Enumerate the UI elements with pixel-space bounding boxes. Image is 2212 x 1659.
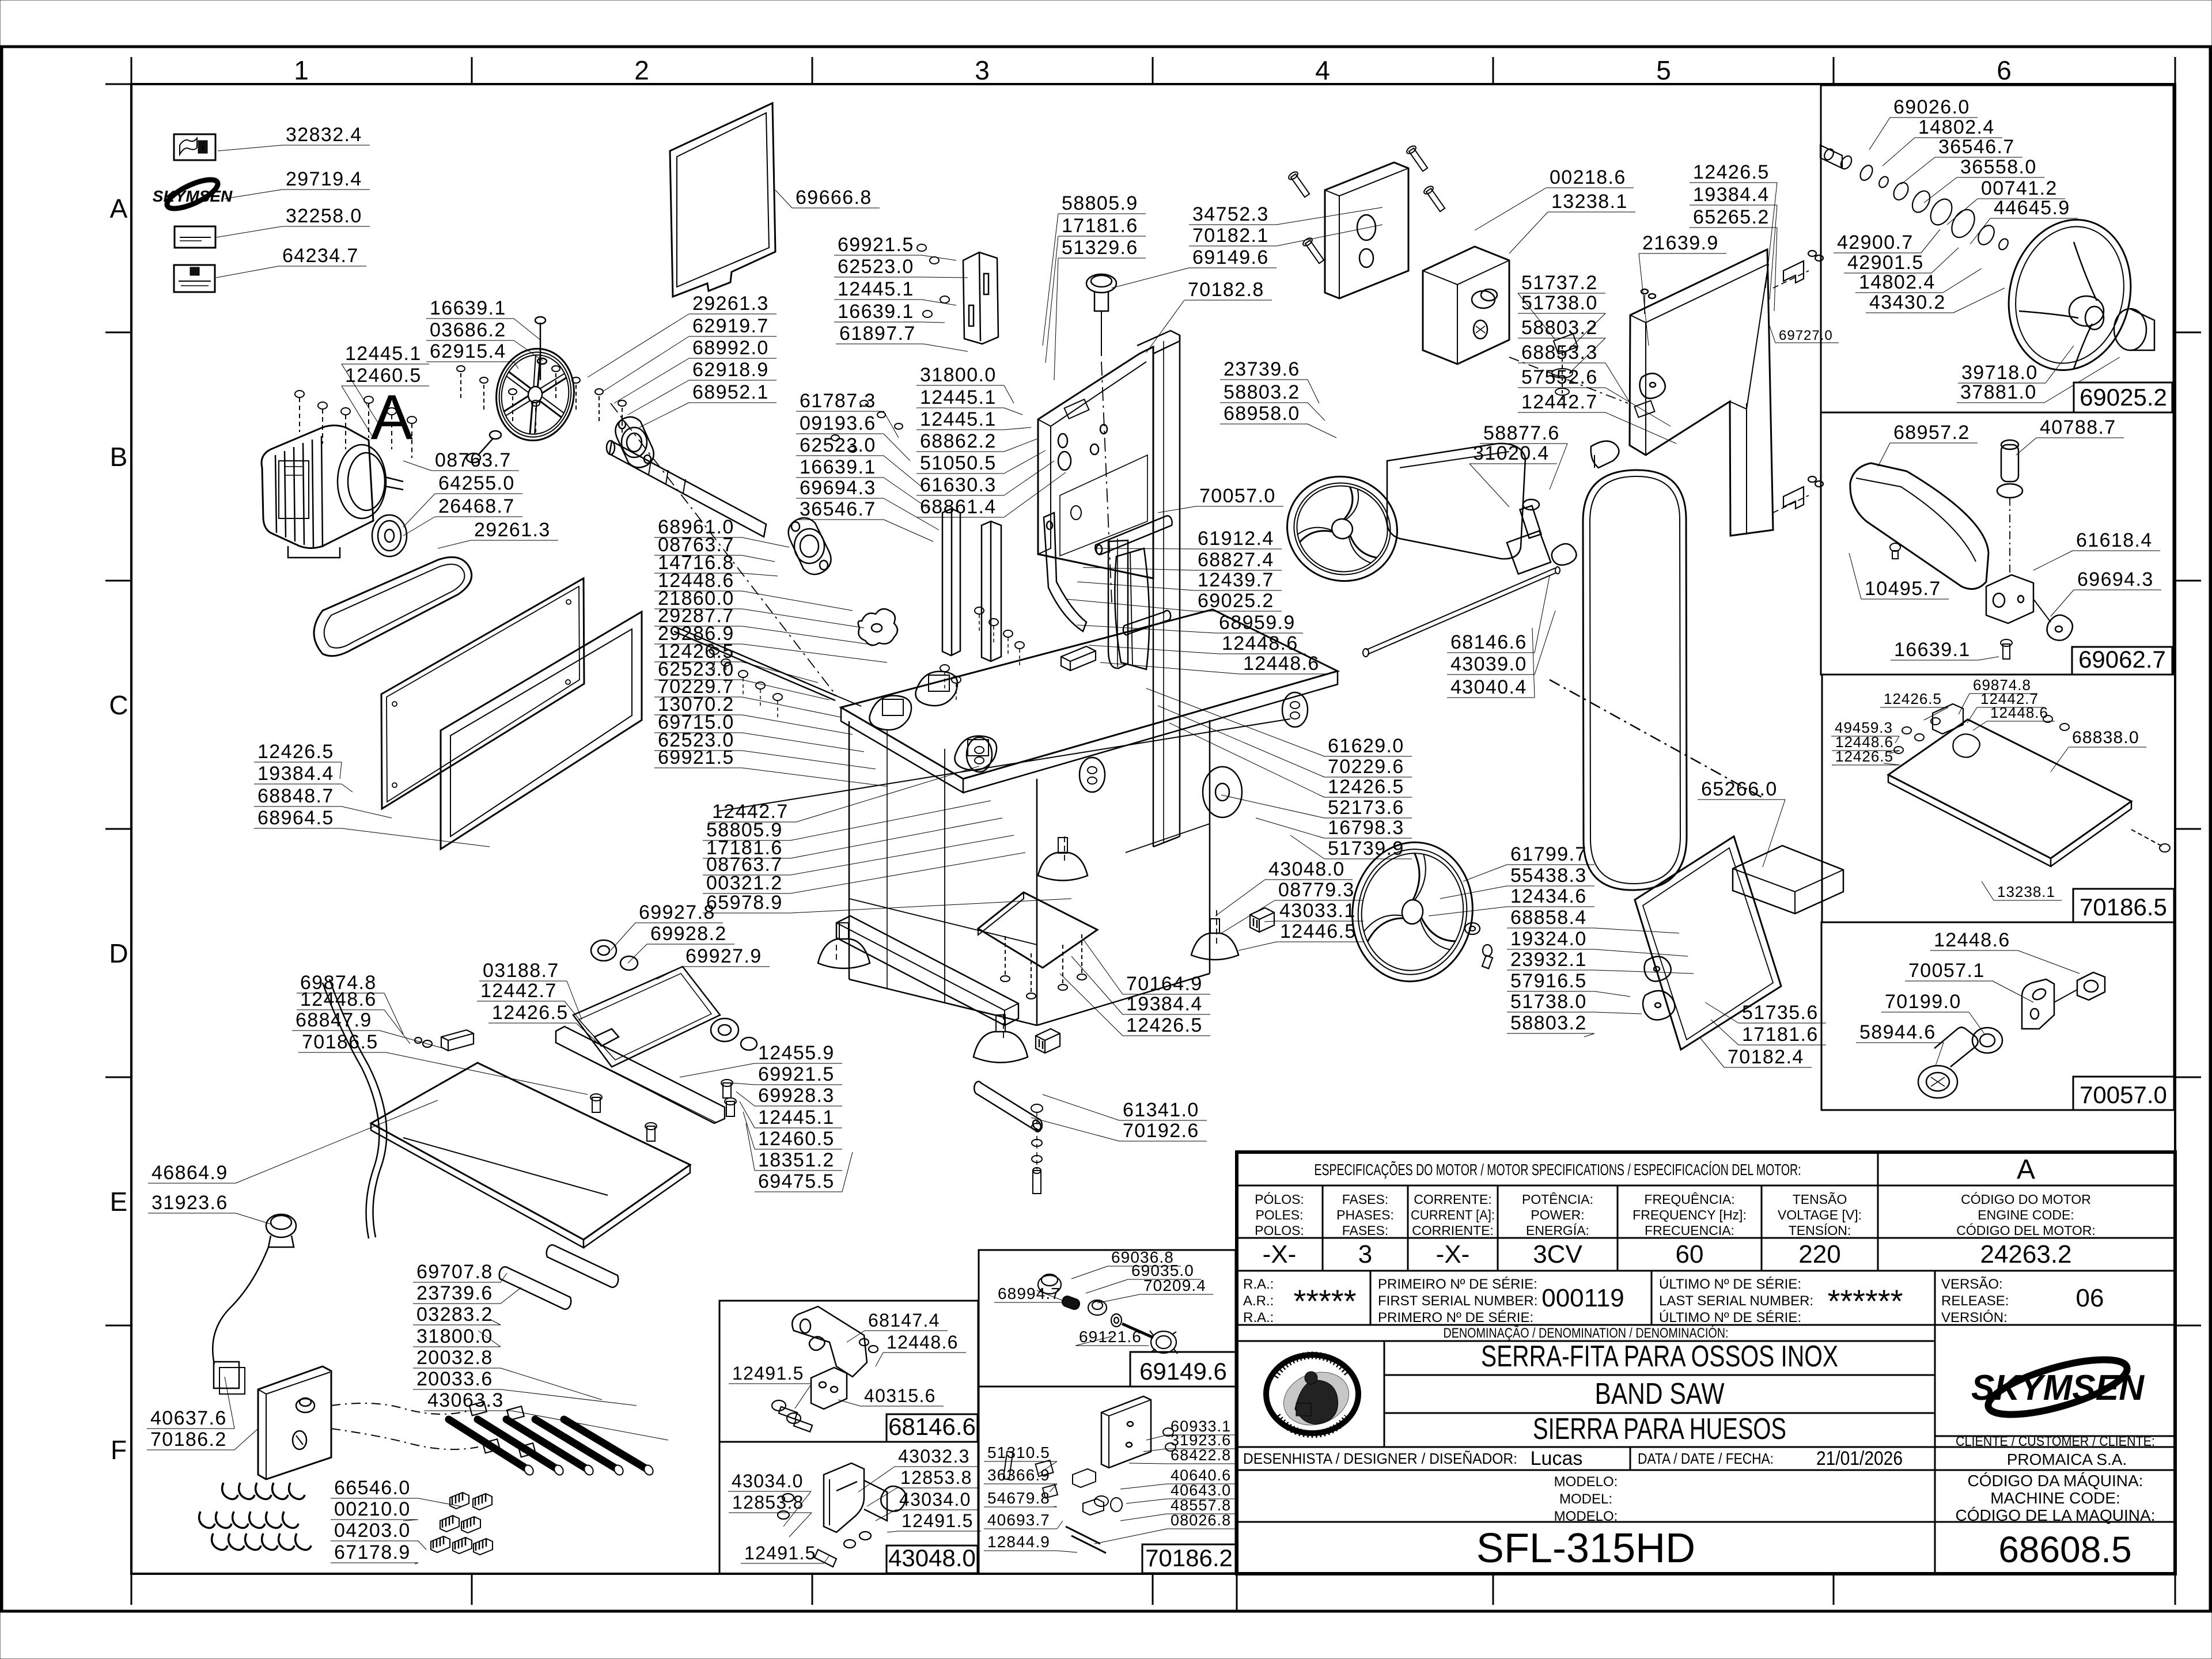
svg-text:62919.7: 62919.7 xyxy=(692,315,769,337)
svg-text:69927.9: 69927.9 xyxy=(685,945,762,967)
svg-text:69025.2: 69025.2 xyxy=(2080,384,2167,411)
svg-text:PRIMEIRO Nº DE SÉRIE:: PRIMEIRO Nº DE SÉRIE: xyxy=(1378,1277,1537,1292)
svg-text:03188.7: 03188.7 xyxy=(483,960,559,982)
svg-text:68858.4: 68858.4 xyxy=(1510,907,1587,929)
svg-text:68958.0: 68958.0 xyxy=(1224,403,1300,425)
svg-text:CÓDIGO DEL MOTOR:: CÓDIGO DEL MOTOR: xyxy=(1956,1223,2096,1238)
svg-text:61618.4: 61618.4 xyxy=(2076,529,2153,551)
svg-text:SERRA-FITA PARA OSSOS INOX: SERRA-FITA PARA OSSOS INOX xyxy=(1481,1340,1838,1373)
svg-text:68827.4: 68827.4 xyxy=(1198,549,1274,571)
svg-text:52173.6: 52173.6 xyxy=(1328,797,1404,819)
svg-text:68964.5: 68964.5 xyxy=(257,807,334,829)
svg-text:69475.5: 69475.5 xyxy=(758,1171,835,1192)
svg-text:69921.5: 69921.5 xyxy=(658,747,734,768)
svg-text:6: 6 xyxy=(1997,55,2012,85)
svg-text:ENERGÍA:: ENERGÍA: xyxy=(1526,1223,1589,1238)
svg-text:68862.2: 68862.2 xyxy=(920,430,997,452)
svg-text:19384.4: 19384.4 xyxy=(1126,993,1203,1015)
svg-text:69707.8: 69707.8 xyxy=(416,1261,493,1283)
svg-text:12445.1: 12445.1 xyxy=(345,343,422,365)
svg-text:36558.0: 36558.0 xyxy=(1960,156,2037,178)
svg-text:*****: ***** xyxy=(1294,1283,1357,1319)
svg-text:68838.0: 68838.0 xyxy=(2072,728,2139,747)
svg-text:12426.5: 12426.5 xyxy=(1884,690,1942,707)
svg-text:69149.6: 69149.6 xyxy=(1139,1358,1227,1385)
svg-text:18351.2: 18351.2 xyxy=(758,1149,835,1171)
svg-text:69921.5: 69921.5 xyxy=(838,234,914,256)
svg-text:62523.0: 62523.0 xyxy=(838,256,914,278)
svg-text:i: i xyxy=(201,142,204,153)
svg-text:D: D xyxy=(109,938,128,968)
svg-text:69062.7: 69062.7 xyxy=(2078,646,2166,673)
svg-text:65266.0: 65266.0 xyxy=(1701,778,1778,800)
svg-text:19384.4: 19384.4 xyxy=(1693,184,1770,206)
svg-text:04203.0: 04203.0 xyxy=(334,1520,411,1541)
svg-text:12446.5: 12446.5 xyxy=(1280,921,1357,942)
svg-text:4: 4 xyxy=(1315,55,1330,85)
svg-text:LAST SERIAL NUMBER:: LAST SERIAL NUMBER: xyxy=(1659,1293,1813,1309)
svg-text:69666.8: 69666.8 xyxy=(796,187,872,209)
svg-text:44645.9: 44645.9 xyxy=(1994,197,2070,219)
svg-text:24263.2: 24263.2 xyxy=(1980,1240,2071,1268)
svg-text:51739.9: 51739.9 xyxy=(1328,838,1404,859)
svg-text:61799.7: 61799.7 xyxy=(1510,843,1587,865)
svg-text:58944.6: 58944.6 xyxy=(1859,1021,1936,1043)
svg-text:70182.8: 70182.8 xyxy=(1188,279,1264,301)
svg-text:26468.7: 26468.7 xyxy=(438,495,515,517)
svg-text:09193.6: 09193.6 xyxy=(800,412,876,434)
svg-text:70057.1: 70057.1 xyxy=(1908,960,1985,982)
svg-text:66546.0: 66546.0 xyxy=(334,1477,411,1499)
svg-text:68861.4: 68861.4 xyxy=(920,496,997,518)
svg-text:39718.0: 39718.0 xyxy=(1961,362,2038,384)
svg-text:ESPECIFICAÇÕES DO MOTOR / MOTO: ESPECIFICAÇÕES DO MOTOR / MOTOR SPECIFIC… xyxy=(1315,1161,1801,1179)
svg-text:12442.7: 12442.7 xyxy=(480,980,557,1002)
svg-text:58877.6: 58877.6 xyxy=(1483,422,1560,444)
svg-text:FIRST SERIAL NUMBER:: FIRST SERIAL NUMBER: xyxy=(1378,1293,1537,1309)
svg-text:62523.0: 62523.0 xyxy=(800,434,876,456)
svg-text:VERSIÓN:: VERSIÓN: xyxy=(1941,1310,2008,1325)
svg-text:12445.1: 12445.1 xyxy=(920,387,997,408)
svg-text:36546.7: 36546.7 xyxy=(1938,136,2015,158)
svg-text:68608.5: 68608.5 xyxy=(1998,1529,2131,1570)
svg-text:A: A xyxy=(110,194,128,224)
svg-text:16639.1: 16639.1 xyxy=(838,301,914,323)
svg-text:RELEASE:: RELEASE: xyxy=(1941,1293,2009,1309)
svg-text:70164.9: 70164.9 xyxy=(1126,973,1203,995)
svg-text:69928.2: 69928.2 xyxy=(650,923,727,945)
svg-text:5: 5 xyxy=(1656,55,1671,85)
svg-text:MACHINE CODE:: MACHINE CODE: xyxy=(1990,1489,2120,1507)
svg-text:43430.2: 43430.2 xyxy=(1869,291,1946,313)
svg-text:21/01/2026: 21/01/2026 xyxy=(1816,1448,1903,1469)
svg-text:68959.9: 68959.9 xyxy=(1219,612,1296,634)
svg-text:12455.9: 12455.9 xyxy=(758,1042,835,1064)
svg-text:-X-: -X- xyxy=(1263,1240,1297,1268)
svg-text:68146.6: 68146.6 xyxy=(1450,631,1527,653)
svg-text:61630.3: 61630.3 xyxy=(920,474,997,496)
svg-text:51329.6: 51329.6 xyxy=(1062,237,1138,259)
svg-text:2: 2 xyxy=(634,55,649,85)
svg-text:61341.0: 61341.0 xyxy=(1123,1099,1199,1121)
svg-text:POLOS:: POLOS: xyxy=(1255,1223,1304,1238)
svg-text:40788.7: 40788.7 xyxy=(2040,416,2116,438)
svg-text:12844.9: 12844.9 xyxy=(987,1533,1050,1551)
svg-text:03686.2: 03686.2 xyxy=(430,319,506,341)
svg-text:12445.1: 12445.1 xyxy=(758,1107,835,1128)
svg-text:31923.6: 31923.6 xyxy=(151,1192,228,1214)
svg-text:46864.9: 46864.9 xyxy=(151,1162,228,1184)
svg-text:31800.0: 31800.0 xyxy=(416,1325,493,1347)
svg-text:FREQUENCY [Hz]:: FREQUENCY [Hz]: xyxy=(1633,1207,1747,1222)
svg-text:16639.1: 16639.1 xyxy=(430,297,506,319)
svg-text:Lucas: Lucas xyxy=(1531,1448,1583,1469)
svg-text:ÚLTIMO Nº DE SÉRIE:: ÚLTIMO Nº DE SÉRIE: xyxy=(1659,1277,1801,1292)
svg-text:69149.6: 69149.6 xyxy=(1192,247,1269,268)
svg-text:-X-: -X- xyxy=(1436,1240,1470,1268)
svg-text:64234.7: 64234.7 xyxy=(282,245,359,267)
svg-text:DESENHISTA / DESIGNER / DISEÑA: DESENHISTA / DESIGNER / DISEÑADOR: xyxy=(1243,1450,1517,1467)
svg-text:220: 220 xyxy=(1798,1240,1840,1268)
svg-text:000119: 000119 xyxy=(1541,1284,1624,1312)
svg-text:36366.9: 36366.9 xyxy=(987,1466,1050,1484)
svg-text:12460.5: 12460.5 xyxy=(758,1128,835,1150)
svg-text:VOLTAGE [V]:: VOLTAGE [V]: xyxy=(1778,1207,1862,1222)
svg-text:29719.4: 29719.4 xyxy=(286,168,362,190)
svg-text:68957.2: 68957.2 xyxy=(1893,422,1970,444)
svg-text:17181.6: 17181.6 xyxy=(1062,215,1138,237)
svg-text:21639.9: 21639.9 xyxy=(1642,232,1719,254)
svg-text:43034.0: 43034.0 xyxy=(732,1471,804,1491)
svg-text:61912.4: 61912.4 xyxy=(1198,528,1274,550)
svg-text:3: 3 xyxy=(975,55,990,85)
svg-text:12448.6: 12448.6 xyxy=(1222,632,1298,654)
svg-text:51310.5: 51310.5 xyxy=(987,1444,1050,1461)
svg-text:00210.0: 00210.0 xyxy=(334,1498,411,1520)
svg-text:20033.6: 20033.6 xyxy=(416,1368,493,1390)
svg-text:1: 1 xyxy=(294,55,309,85)
svg-text:29261.3: 29261.3 xyxy=(692,293,769,315)
svg-text:12448.6: 12448.6 xyxy=(300,988,377,1010)
svg-text:65978.9: 65978.9 xyxy=(706,892,783,914)
svg-text:MODEL:: MODEL: xyxy=(1559,1491,1612,1507)
svg-text:FREQUÊNCIA:: FREQUÊNCIA: xyxy=(1644,1192,1734,1207)
svg-text:70186.5: 70186.5 xyxy=(302,1031,378,1053)
svg-text:12491.5: 12491.5 xyxy=(744,1543,816,1563)
svg-text:CÓDIGO DO MOTOR: CÓDIGO DO MOTOR xyxy=(1961,1192,2091,1207)
svg-text:40693.7: 40693.7 xyxy=(987,1511,1050,1529)
svg-text:70192.6: 70192.6 xyxy=(1123,1120,1199,1142)
svg-text:12426.5: 12426.5 xyxy=(492,1002,569,1024)
svg-text:58803.2: 58803.2 xyxy=(1510,1012,1587,1034)
svg-text:12434.6: 12434.6 xyxy=(1510,885,1587,907)
svg-text:BAND SAW: BAND SAW xyxy=(1595,1377,1725,1411)
svg-text:68952.1: 68952.1 xyxy=(692,381,769,403)
svg-text:00218.6: 00218.6 xyxy=(1550,166,1626,188)
svg-text:VERSÃO:: VERSÃO: xyxy=(1941,1277,2003,1292)
svg-text:3: 3 xyxy=(1358,1240,1372,1268)
svg-text:ÚLTIMO Nº DE SÉRIE:: ÚLTIMO Nº DE SÉRIE: xyxy=(1659,1310,1801,1325)
svg-text:FASES:: FASES: xyxy=(1342,1192,1389,1207)
svg-text:68422.8: 68422.8 xyxy=(1171,1446,1231,1464)
svg-text:PHASES:: PHASES: xyxy=(1336,1207,1394,1222)
svg-text:DENOMINAÇÃO / DENOMINATION / D: DENOMINAÇÃO / DENOMINATION / DENOMINACIÓ… xyxy=(1444,1325,1729,1341)
svg-text:19384.4: 19384.4 xyxy=(257,763,334,785)
svg-text:32832.4: 32832.4 xyxy=(286,124,362,146)
svg-text:70057.0: 70057.0 xyxy=(2080,1081,2167,1108)
svg-text:03283.2: 03283.2 xyxy=(416,1304,493,1325)
svg-text:SIERRA PARA HUESOS: SIERRA PARA HUESOS xyxy=(1533,1412,1786,1446)
svg-text:23932.1: 23932.1 xyxy=(1510,949,1587,971)
svg-text:08779.3: 08779.3 xyxy=(1278,879,1355,901)
svg-text:10495.7: 10495.7 xyxy=(1865,578,1941,600)
svg-text:CÓDIGO DA MÁQUINA:: CÓDIGO DA MÁQUINA: xyxy=(1968,1472,2143,1490)
svg-text:70209.4: 70209.4 xyxy=(1143,1277,1206,1294)
svg-text:23739.6: 23739.6 xyxy=(1224,358,1300,380)
svg-text:68848.7: 68848.7 xyxy=(257,785,334,807)
svg-text:13238.1: 13238.1 xyxy=(1551,191,1628,213)
svg-text:51735.6: 51735.6 xyxy=(1742,1002,1819,1024)
svg-text:PROMAICA S.A.: PROMAICA S.A. xyxy=(2007,1450,2127,1468)
svg-text:51738.0: 51738.0 xyxy=(1510,991,1587,1013)
svg-text:70199.0: 70199.0 xyxy=(1885,991,1961,1013)
svg-text:SKYMSEN: SKYMSEN xyxy=(153,187,233,205)
svg-text:40315.6: 40315.6 xyxy=(864,1385,936,1406)
svg-text:68146.6: 68146.6 xyxy=(888,1413,976,1440)
svg-text:68992.0: 68992.0 xyxy=(692,337,769,359)
svg-text:FASES:: FASES: xyxy=(1342,1223,1389,1238)
svg-text:CURRENT [A]:: CURRENT [A]: xyxy=(1411,1207,1495,1222)
svg-text:F: F xyxy=(111,1435,127,1465)
svg-text:R.A.:: R.A.: xyxy=(1243,1277,1274,1292)
svg-text:69921.5: 69921.5 xyxy=(758,1063,835,1085)
svg-text:70057.0: 70057.0 xyxy=(1199,485,1276,507)
svg-text:54679.8: 54679.8 xyxy=(987,1489,1050,1507)
svg-text:12853.8: 12853.8 xyxy=(900,1467,972,1488)
svg-text:TENSÍON:: TENSÍON: xyxy=(1789,1223,1851,1238)
svg-text:51050.5: 51050.5 xyxy=(920,452,997,474)
svg-text:34752.3: 34752.3 xyxy=(1192,203,1269,225)
svg-text:******: ****** xyxy=(1828,1283,1903,1319)
svg-text:43063.3: 43063.3 xyxy=(427,1389,504,1411)
svg-text:67178.9: 67178.9 xyxy=(334,1541,411,1563)
svg-text:43039.0: 43039.0 xyxy=(1450,653,1527,675)
svg-text:51737.2: 51737.2 xyxy=(1521,272,1598,294)
svg-text:12491.5: 12491.5 xyxy=(902,1510,974,1531)
svg-text:57916.5: 57916.5 xyxy=(1510,970,1587,992)
svg-text:43032.3: 43032.3 xyxy=(898,1446,970,1467)
svg-text:68853.3: 68853.3 xyxy=(1521,342,1598,363)
svg-text:17181.6: 17181.6 xyxy=(1742,1024,1819,1046)
svg-text:51738.0: 51738.0 xyxy=(1521,292,1598,314)
svg-text:POLES:: POLES: xyxy=(1255,1207,1303,1222)
svg-text:14802.4: 14802.4 xyxy=(1918,116,1995,138)
svg-text:CORRENTE:: CORRENTE: xyxy=(1414,1192,1491,1207)
svg-text:ENGINE CODE:: ENGINE CODE: xyxy=(1978,1207,2074,1222)
svg-text:70186.5: 70186.5 xyxy=(2080,893,2167,921)
svg-text:12426.5: 12426.5 xyxy=(1693,161,1770,183)
svg-text:58803.2: 58803.2 xyxy=(1224,381,1300,403)
svg-text:CLIENTE / CUSTOMER / CLIENTE:: CLIENTE / CUSTOMER / CLIENTE: xyxy=(1956,1434,2155,1449)
svg-text:13238.1: 13238.1 xyxy=(1997,883,2055,900)
svg-text:70182.1: 70182.1 xyxy=(1192,225,1269,247)
svg-text:69026.0: 69026.0 xyxy=(1893,96,1970,118)
svg-text:20032.8: 20032.8 xyxy=(416,1347,493,1369)
svg-text:43034.0: 43034.0 xyxy=(899,1489,971,1510)
svg-text:69927.8: 69927.8 xyxy=(639,902,715,923)
svg-text:62918.9: 62918.9 xyxy=(692,359,769,381)
svg-text:70186.2: 70186.2 xyxy=(150,1429,227,1450)
svg-text:32258.0: 32258.0 xyxy=(286,205,362,227)
svg-text:69727.0: 69727.0 xyxy=(1779,328,1833,343)
svg-text:12448.6: 12448.6 xyxy=(1990,704,2048,721)
svg-text:16639.1: 16639.1 xyxy=(800,456,876,478)
svg-text:SFL-315HD: SFL-315HD xyxy=(1476,1525,1695,1571)
svg-text:06: 06 xyxy=(2076,1284,2104,1312)
svg-text:69928.3: 69928.3 xyxy=(758,1085,835,1107)
svg-text:PRIMERO Nº DE SÉRIE:: PRIMERO Nº DE SÉRIE: xyxy=(1378,1310,1533,1325)
svg-text:37881.0: 37881.0 xyxy=(1960,381,2037,403)
svg-text:31800.0: 31800.0 xyxy=(920,364,997,386)
svg-text:40637.6: 40637.6 xyxy=(150,1407,227,1429)
svg-text:14802.4: 14802.4 xyxy=(1859,271,1935,293)
svg-text:16798.3: 16798.3 xyxy=(1328,817,1404,839)
svg-text:DATA / DATE / FECHA:: DATA / DATE / FECHA: xyxy=(1638,1450,1774,1467)
svg-text:B: B xyxy=(110,442,128,472)
svg-text:3CV: 3CV xyxy=(1533,1240,1582,1268)
svg-text:A: A xyxy=(2017,1154,2035,1185)
svg-text:60: 60 xyxy=(1676,1240,1704,1268)
svg-text:SKYMSEN: SKYMSEN xyxy=(1971,1368,2145,1408)
svg-text:65265.2: 65265.2 xyxy=(1693,206,1770,228)
svg-text:PÓLOS:: PÓLOS: xyxy=(1255,1192,1304,1207)
svg-text:MODELO:: MODELO: xyxy=(1554,1474,1618,1490)
svg-text:23739.6: 23739.6 xyxy=(416,1282,493,1304)
svg-text:62915.4: 62915.4 xyxy=(430,340,506,362)
svg-text:16639.1: 16639.1 xyxy=(1894,639,1971,661)
svg-text:12445.1: 12445.1 xyxy=(838,278,914,300)
svg-text:TENSÃO: TENSÃO xyxy=(1793,1192,1847,1207)
svg-text:12426.5: 12426.5 xyxy=(1835,748,1893,765)
svg-text:43040.4: 43040.4 xyxy=(1450,676,1527,698)
svg-text:08026.8: 08026.8 xyxy=(1171,1512,1231,1529)
svg-text:69694.3: 69694.3 xyxy=(800,477,876,499)
svg-text:12439.7: 12439.7 xyxy=(1198,569,1274,591)
svg-text:68147.4: 68147.4 xyxy=(868,1310,940,1331)
svg-text:69694.3: 69694.3 xyxy=(2077,569,2154,590)
svg-text:12426.5: 12426.5 xyxy=(1328,776,1404,798)
svg-text:FRECUENCIA:: FRECUENCIA: xyxy=(1645,1223,1734,1238)
svg-text:12491.5: 12491.5 xyxy=(732,1363,804,1384)
svg-text:58805.9: 58805.9 xyxy=(1062,192,1138,214)
svg-text:POTÊNCIA:: POTÊNCIA: xyxy=(1522,1192,1593,1207)
svg-text:61629.0: 61629.0 xyxy=(1328,735,1404,757)
svg-text:43048.0: 43048.0 xyxy=(888,1544,976,1571)
svg-text:64255.0: 64255.0 xyxy=(438,472,515,494)
svg-text:55438.3: 55438.3 xyxy=(1510,865,1587,887)
svg-text:42901.5: 42901.5 xyxy=(1847,252,1924,274)
svg-text:00321.2: 00321.2 xyxy=(706,872,783,894)
svg-text:MODELO:: MODELO: xyxy=(1554,1509,1618,1524)
svg-text:58803.2: 58803.2 xyxy=(1521,317,1598,339)
svg-text:70182.4: 70182.4 xyxy=(1728,1046,1804,1068)
svg-text:C: C xyxy=(109,690,128,720)
svg-text:12445.1: 12445.1 xyxy=(920,408,997,430)
svg-text:19324.0: 19324.0 xyxy=(1510,928,1587,950)
svg-text:42900.7: 42900.7 xyxy=(1837,232,1914,253)
svg-text:43048.0: 43048.0 xyxy=(1268,858,1345,880)
svg-text:12426.5: 12426.5 xyxy=(1126,1014,1203,1036)
svg-text:POWER:: POWER: xyxy=(1531,1207,1584,1222)
svg-text:12460.5: 12460.5 xyxy=(345,365,422,387)
svg-text:43033.1: 43033.1 xyxy=(1279,900,1356,922)
svg-text:E: E xyxy=(110,1187,128,1217)
svg-text:CÓDIGO DE LA MAQUINA:: CÓDIGO DE LA MAQUINA: xyxy=(1956,1506,2156,1524)
svg-text:36546.7: 36546.7 xyxy=(800,498,876,520)
svg-text:12448.6: 12448.6 xyxy=(887,1332,959,1353)
svg-text:69025.2: 69025.2 xyxy=(1198,590,1274,612)
svg-text:08763.7: 08763.7 xyxy=(435,449,512,471)
svg-text:12426.5: 12426.5 xyxy=(257,741,334,763)
svg-text:12448.6: 12448.6 xyxy=(1934,929,2010,951)
svg-text:R.A.:: R.A.: xyxy=(1243,1310,1274,1325)
svg-text:70229.6: 70229.6 xyxy=(1328,756,1404,778)
svg-text:00741.2: 00741.2 xyxy=(1981,177,2058,199)
svg-text:A.R.:: A.R.: xyxy=(1243,1293,1274,1309)
svg-text:29261.3: 29261.3 xyxy=(474,519,551,541)
svg-text:CORRIENTE:: CORRIENTE: xyxy=(1412,1223,1494,1238)
svg-text:70186.2: 70186.2 xyxy=(1145,1544,1233,1571)
svg-text:61897.7: 61897.7 xyxy=(839,323,916,344)
